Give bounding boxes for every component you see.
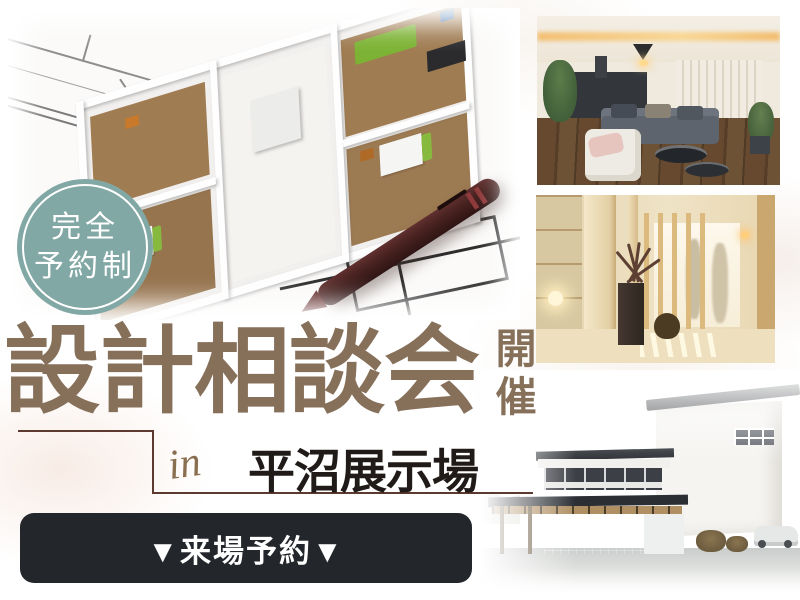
- visit-reservation-button[interactable]: ▼来場予約▼: [20, 513, 472, 583]
- eave-post: [500, 506, 504, 554]
- ground: [480, 548, 800, 600]
- plant: [543, 60, 577, 122]
- badge-label: 完全 予約制: [34, 208, 136, 286]
- eave-post: [528, 506, 532, 554]
- pendant-lamp: [633, 44, 653, 60]
- cove-light: [537, 32, 780, 41]
- balcony-rail: [544, 482, 662, 488]
- brick-wall: [544, 514, 644, 554]
- round-lamp: [548, 291, 563, 306]
- fascia: [538, 459, 670, 468]
- event-title: 設計相談会: [4, 324, 479, 420]
- living-room-photo: [537, 16, 780, 185]
- shrub: [696, 530, 726, 552]
- lamp-glow: [639, 60, 648, 66]
- wood-slat-screen: [644, 213, 708, 333]
- frame-line-left: [152, 430, 154, 494]
- model-hall-floor: [220, 45, 336, 283]
- wall-light: [741, 231, 749, 239]
- planter: [750, 136, 770, 154]
- model-bed-accent: [152, 225, 162, 252]
- badge-line2: 予約制: [34, 247, 136, 286]
- car-wheel: [758, 540, 766, 548]
- coffee-table: [655, 145, 707, 163]
- location-prefix: in: [165, 438, 204, 490]
- shrub: [726, 536, 748, 552]
- car-wheel: [784, 540, 792, 548]
- frame-line-top: [18, 430, 153, 432]
- wood-soffit: [492, 506, 682, 514]
- small-window-grid: [734, 428, 774, 445]
- entrance-hall-photo: [536, 195, 775, 363]
- event-title-vertical: 開催: [482, 327, 542, 423]
- sofa-cushions: [611, 104, 637, 118]
- tall-planter: [618, 283, 644, 345]
- blueprint-tick: [82, 35, 92, 62]
- visit-reservation-label: ▼来場予約▼: [147, 526, 344, 571]
- reservation-badge: 完全 予約制: [17, 179, 153, 315]
- white-wall: [644, 514, 684, 554]
- sunlight-stripes: [640, 333, 718, 357]
- event-banner: 完全 予約制 設計相談会 開催 in 平沼展示場 ▼来場予約▼: [0, 0, 800, 600]
- coffee-table: [685, 162, 729, 177]
- badge-line1: 完全: [34, 208, 136, 247]
- location-name: 平沼展示場: [248, 433, 478, 502]
- basket: [654, 313, 680, 339]
- model-bed-accent: [421, 132, 432, 162]
- range-hood: [595, 56, 607, 78]
